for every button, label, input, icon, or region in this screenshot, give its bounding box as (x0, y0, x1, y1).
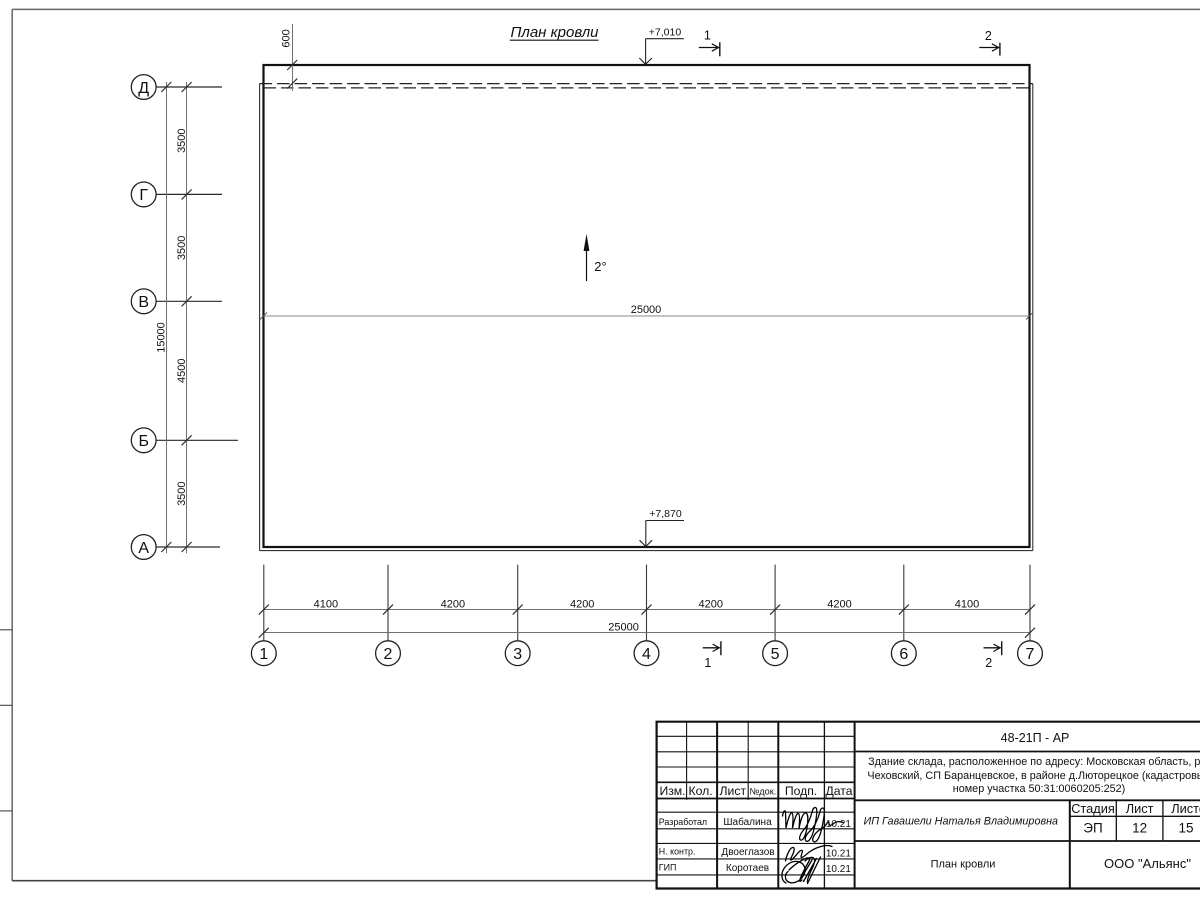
svg-text:Здание склада, расположенное п: Здание склада, расположенное по адресу: … (868, 756, 1200, 768)
svg-text:№док.: №док. (749, 787, 776, 797)
svg-text:Кол.: Кол. (689, 784, 713, 798)
svg-text:4: 4 (642, 646, 651, 663)
svg-text:План кровли: План кровли (511, 24, 600, 41)
svg-text:4100: 4100 (314, 598, 338, 610)
svg-text:ЭП: ЭП (1083, 821, 1102, 836)
svg-text:номер участка 50:31:0060205:25: номер участка 50:31:0060205:252) (953, 783, 1125, 795)
svg-text:2°: 2° (594, 259, 606, 274)
svg-text:Б: Б (138, 433, 149, 450)
svg-text:3: 3 (513, 646, 522, 663)
svg-text:2: 2 (384, 646, 393, 663)
svg-text:1: 1 (259, 646, 268, 663)
svg-text:Н. контр.: Н. контр. (659, 847, 696, 857)
svg-text:Дата: Дата (826, 784, 853, 798)
svg-text:4100: 4100 (955, 598, 979, 610)
svg-text:Подп.: Подп. (785, 784, 817, 798)
svg-text:10.21: 10.21 (826, 848, 851, 859)
svg-text:А: А (138, 540, 149, 557)
svg-text:4200: 4200 (827, 598, 851, 610)
svg-text:25000: 25000 (608, 621, 639, 633)
svg-text:4500: 4500 (176, 359, 188, 383)
svg-text:1: 1 (704, 656, 711, 670)
svg-text:+7,010: +7,010 (649, 27, 682, 39)
svg-text:2: 2 (985, 656, 992, 670)
svg-text:10.21: 10.21 (826, 864, 851, 875)
svg-text:3500: 3500 (176, 481, 188, 505)
svg-text:7: 7 (1026, 646, 1035, 663)
svg-text:+7,870: +7,870 (649, 508, 682, 520)
svg-text:4200: 4200 (441, 598, 465, 610)
svg-text:В: В (138, 294, 149, 311)
svg-text:Г: Г (139, 187, 148, 204)
svg-text:Листов: Листов (1171, 801, 1200, 816)
svg-text:ИП Гавашели Наталья Владимиров: ИП Гавашели Наталья Владимировна (864, 815, 1059, 827)
svg-text:Чеховский, СП Баранцевское, в: Чеховский, СП Баранцевское, в районе д.Л… (867, 770, 1200, 782)
svg-text:Шабалина: Шабалина (723, 816, 772, 828)
svg-text:4200: 4200 (570, 598, 594, 610)
svg-text:1: 1 (704, 29, 711, 43)
svg-text:2: 2 (985, 29, 992, 43)
svg-text:Лист: Лист (1126, 801, 1154, 816)
svg-text:Д: Д (138, 80, 149, 97)
svg-text:4200: 4200 (699, 598, 723, 610)
svg-text:Изм.: Изм. (659, 784, 685, 798)
svg-text:5: 5 (771, 646, 780, 663)
svg-text:Разработал: Разработал (659, 817, 707, 827)
svg-text:3500: 3500 (176, 236, 188, 260)
svg-text:Стадия: Стадия (1071, 801, 1115, 816)
svg-text:15: 15 (1178, 821, 1193, 836)
svg-text:План кровли: План кровли (931, 858, 996, 870)
svg-text:ГИП: ГИП (659, 863, 677, 873)
svg-text:Лист: Лист (720, 784, 747, 798)
svg-text:600: 600 (281, 29, 293, 47)
svg-text:15000: 15000 (156, 322, 168, 353)
svg-text:25000: 25000 (631, 304, 662, 316)
svg-text:12: 12 (1132, 821, 1147, 836)
svg-text:6: 6 (899, 646, 908, 663)
svg-text:Коротаев: Коротаев (726, 863, 769, 874)
svg-text:48-21П - АР: 48-21П - АР (1001, 731, 1070, 745)
svg-text:Двоеглазов: Двоеглазов (721, 847, 774, 858)
svg-text:3500: 3500 (176, 128, 188, 152)
svg-text:ООО "Альянс": ООО "Альянс" (1104, 856, 1191, 871)
